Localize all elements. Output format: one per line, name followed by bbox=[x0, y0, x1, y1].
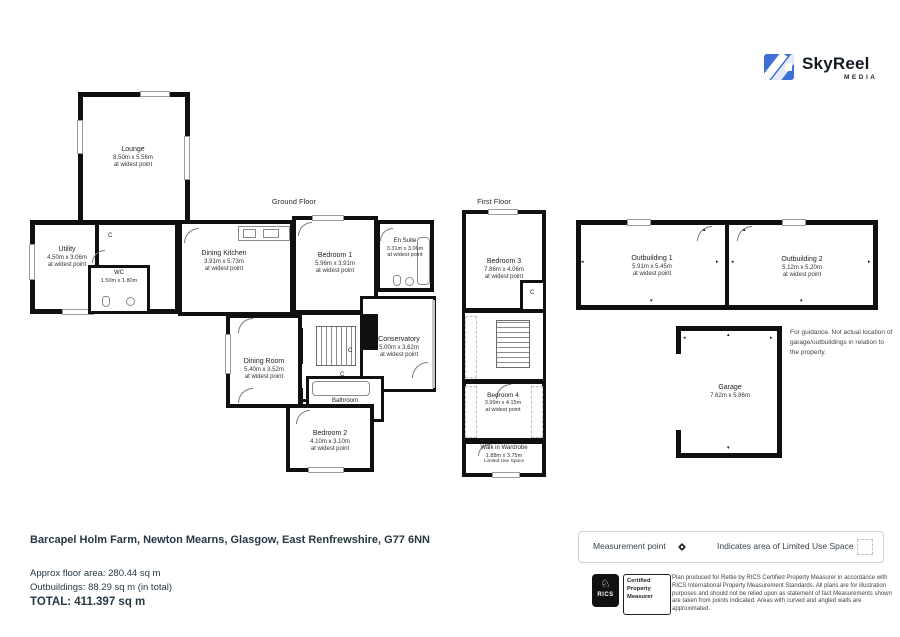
measure-arrow: ◂ bbox=[731, 260, 734, 265]
measure-arrow: ▾ bbox=[727, 446, 730, 451]
wall-segment bbox=[676, 430, 681, 458]
room-label-bedroom4: Bedroom 4 3.99m x 4.15m at widest point bbox=[468, 392, 538, 414]
window-marker bbox=[627, 219, 651, 226]
rics-label: RICS bbox=[592, 592, 619, 598]
wall-segment bbox=[725, 222, 729, 308]
total-area: TOTAL: 411.397 sq m bbox=[30, 596, 310, 608]
measurement-point-icon bbox=[675, 540, 689, 554]
approx-floor-area: Approx floor area: 280.44 sq m bbox=[30, 568, 310, 579]
ground-floor-label: Ground Floor bbox=[252, 197, 336, 206]
area-summary: Approx floor area: 280.44 sq m Outbuildi… bbox=[30, 568, 310, 608]
bath-fixture bbox=[312, 381, 370, 396]
room-label-ensuite: En Suite 3.31m x 3.06m at widest point bbox=[380, 238, 430, 259]
measure-arrow: ▾ bbox=[650, 299, 653, 304]
outbuildings-area: Outbuildings: 88.29 sq m (in total) bbox=[30, 582, 310, 593]
room-label-dining-room: Dining Room 5.40m x 3.52m at widest poin… bbox=[232, 358, 296, 382]
rics-crest-icon: ♘ bbox=[592, 576, 619, 592]
room-label-wc: WC 1.50m x 1.80m bbox=[92, 270, 146, 284]
wall-segment bbox=[676, 326, 681, 354]
brand-sub: MEDIA bbox=[844, 74, 877, 81]
measure-arrow: ▸ bbox=[868, 260, 871, 265]
rics-badge: ♘ RICS bbox=[592, 574, 619, 607]
window-marker bbox=[140, 91, 170, 97]
room-label-garage: Garage 7.62m x 5.86m bbox=[692, 384, 768, 400]
room-label-bedroom2: Bedroom 2 4.10m x 3.10m at widest point bbox=[295, 430, 365, 454]
window-marker bbox=[184, 136, 190, 180]
certified-measurer-box: Certified Property Measurer bbox=[623, 574, 671, 615]
kitchen-sink bbox=[243, 229, 256, 238]
room-label-bedroom3: Bedroom 3 7.86m x 4.06m at widest point bbox=[470, 258, 538, 282]
window-marker bbox=[225, 334, 231, 374]
legend-measurement-point: Measurement point bbox=[593, 541, 666, 551]
room-label-conservatory: Conservatory 5.00m x 3.62m at widest poi… bbox=[364, 336, 434, 360]
property-address: Barcapel Holm Farm, Newton Mearns, Glasg… bbox=[30, 534, 430, 546]
window-marker bbox=[492, 472, 520, 478]
window-marker bbox=[77, 120, 83, 154]
measure-arrow: ◂ bbox=[581, 260, 584, 265]
kitchen-hob bbox=[263, 229, 279, 238]
measure-arrow: ▸ bbox=[716, 260, 719, 265]
measure-arrow: ▴ bbox=[703, 228, 706, 233]
toilet-fixture bbox=[102, 296, 110, 307]
room-label-lounge: Lounge 8.50m x 5.56m at widest point bbox=[93, 146, 173, 170]
limited-use-swatch-icon bbox=[857, 539, 873, 555]
skyreel-logo: SkyReel MEDIA bbox=[760, 48, 890, 90]
skyreel-logo-icon bbox=[764, 54, 794, 80]
room-label-outbuilding2: Outbuilding 2 5.12m x 5.20m at widest po… bbox=[762, 256, 842, 280]
cupboard-label: C bbox=[530, 290, 534, 296]
room-label-outbuilding1: Outbuilding 1 5.91m x 5.45m at widest po… bbox=[612, 255, 692, 279]
window-marker bbox=[308, 467, 344, 473]
wall-segment bbox=[676, 326, 782, 331]
sink-fixture bbox=[126, 297, 135, 306]
measure-arrow: ▴ bbox=[727, 333, 730, 338]
cupboard-label: C bbox=[348, 348, 352, 354]
cupboard-label: C bbox=[108, 233, 112, 239]
toilet-fixture bbox=[393, 275, 401, 286]
window-marker bbox=[312, 215, 344, 221]
disclaimer-text: Plan produced for Rettie by RICS Certifi… bbox=[672, 575, 892, 614]
first-floor-label: First Floor bbox=[452, 197, 536, 206]
stairs-first-floor bbox=[496, 320, 530, 368]
legend-box: Measurement point Indicates area of Limi… bbox=[578, 531, 884, 563]
window-marker bbox=[29, 244, 35, 280]
room-label-bedroom1: Bedroom 1 5.96m x 3.91m at widest point bbox=[300, 252, 370, 276]
brand-name: SkyReel bbox=[802, 54, 870, 74]
measure-arrow: ▴ bbox=[743, 228, 746, 233]
guidance-note: For guidance. Not actual location of gar… bbox=[790, 328, 894, 357]
stairs-ground bbox=[316, 326, 356, 366]
room-label-dining-kitchen: Dining Kitchen 3.91m x 5.73m at widest p… bbox=[186, 250, 262, 274]
legend-limited-use: Indicates area of Limited Use Space bbox=[717, 541, 854, 551]
measure-arrow: ▸ bbox=[770, 336, 773, 341]
logo-lens bbox=[785, 63, 792, 71]
measure-arrow: ◂ bbox=[683, 336, 686, 341]
measure-arrow: ▾ bbox=[800, 299, 803, 304]
window-marker bbox=[782, 219, 806, 226]
limited-use-strip bbox=[465, 316, 477, 378]
wall-segment bbox=[676, 453, 782, 458]
sink-fixture bbox=[405, 277, 414, 286]
room-label-wardrobe: Walk in Wardrobe 1.88m x 3.75m Limited U… bbox=[466, 445, 542, 465]
window-marker bbox=[488, 209, 518, 215]
wall-segment bbox=[777, 326, 782, 458]
cupboard-first-floor bbox=[520, 280, 546, 312]
